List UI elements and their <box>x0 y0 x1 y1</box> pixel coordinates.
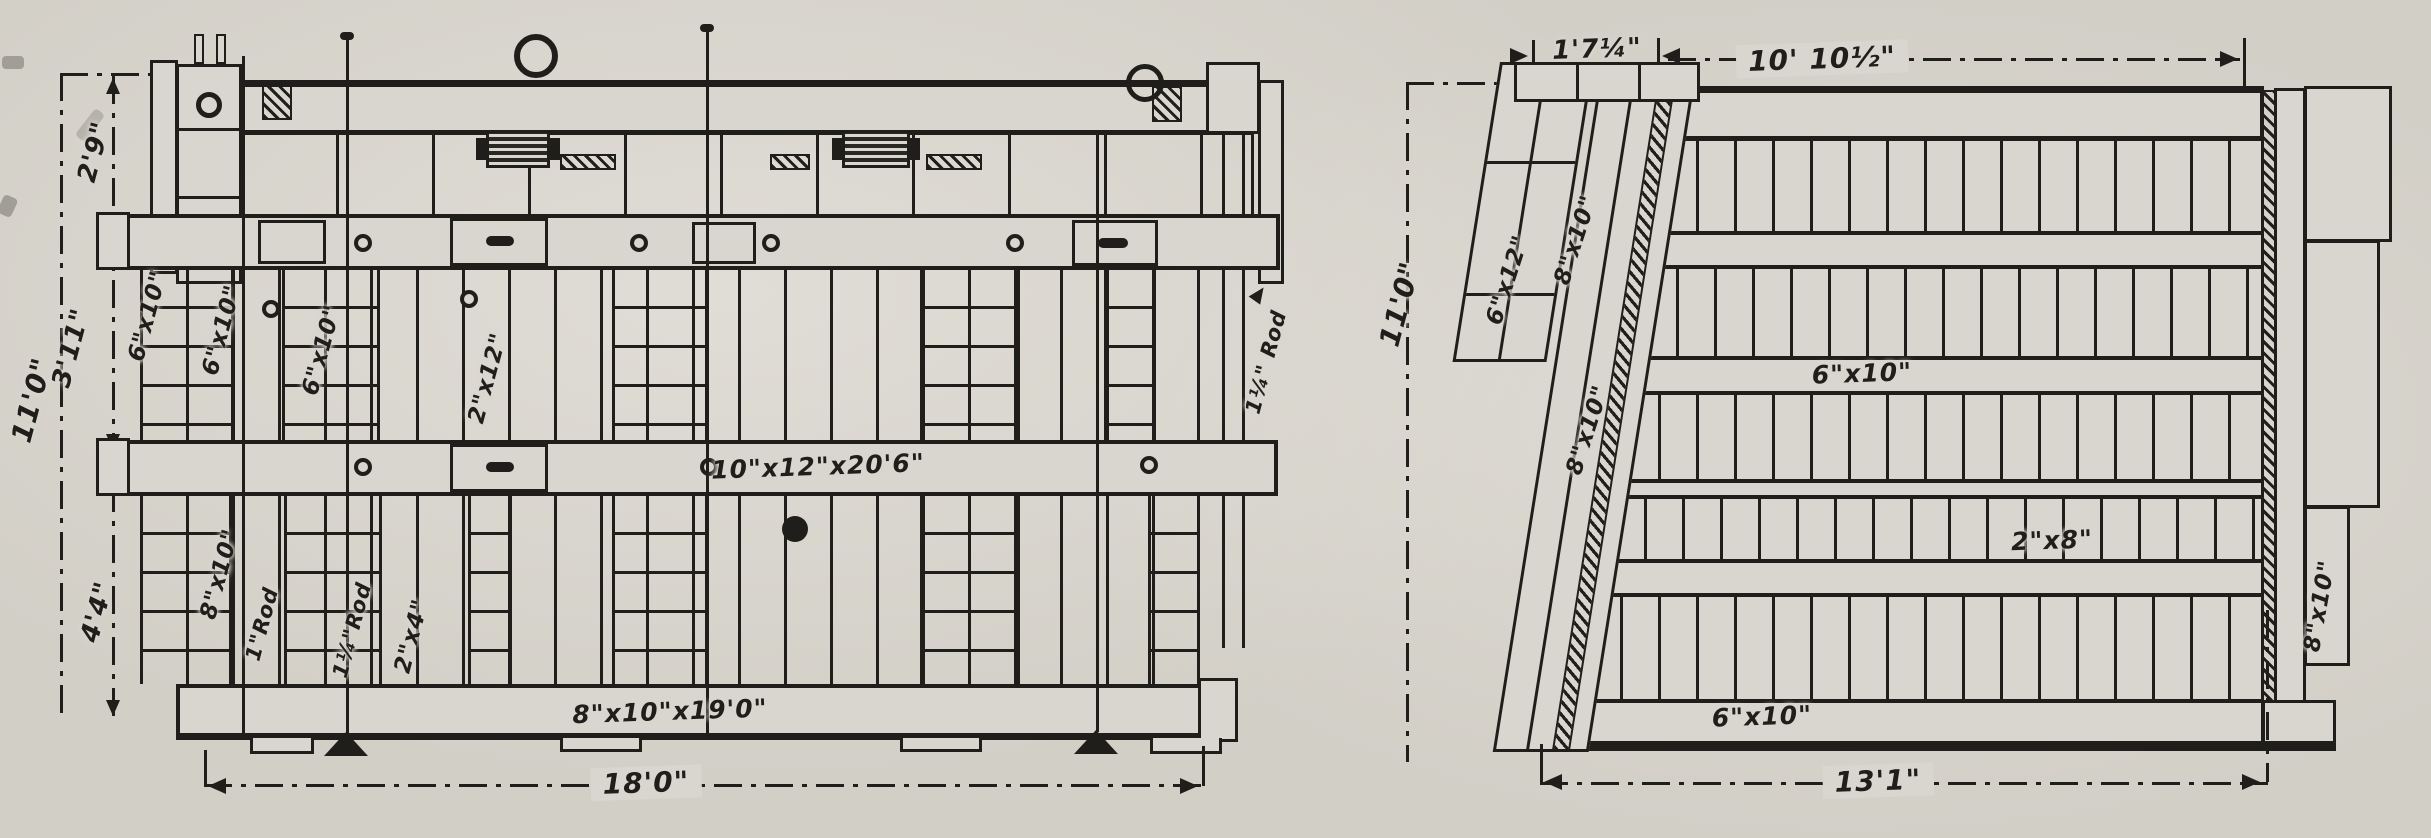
bolt-slot <box>486 462 514 472</box>
part-label-sheathing: 2"x8" <box>2011 526 2094 555</box>
hatch-block <box>262 84 292 120</box>
hatch-strip <box>926 154 982 170</box>
bolt-head <box>1140 456 1158 474</box>
lattice-column <box>468 496 512 684</box>
bolt-head <box>630 234 648 252</box>
hatch-strip <box>770 154 810 170</box>
base-line <box>2262 744 2336 751</box>
knot-hole <box>782 516 808 542</box>
arrow-right-icon <box>1180 778 1198 794</box>
sill-foot <box>560 738 642 752</box>
pulley-wheel <box>196 92 222 118</box>
upper-block-row <box>240 132 1254 218</box>
dimension-line-top-hook <box>60 73 154 76</box>
top-rail <box>226 80 1280 134</box>
anchor-bolt <box>216 34 226 64</box>
yoke-bracket <box>1206 62 1260 134</box>
tie-rod <box>1096 132 1099 732</box>
turnbuckle-cap <box>832 138 842 160</box>
waler-end-block <box>96 438 130 496</box>
bolt-slot <box>1098 238 1128 248</box>
dimension-line-height-segments <box>112 76 115 718</box>
lattice-column <box>1148 496 1200 684</box>
arrow-left-icon <box>208 778 226 794</box>
anchor-bell <box>1074 730 1118 754</box>
bolt-slot <box>486 236 514 246</box>
arrow-right-icon <box>2242 774 2260 790</box>
rod-cap <box>700 24 714 32</box>
dimension-label-top-width: 10' 10½" <box>1736 39 1909 78</box>
part-label-mid-waler: 6"x10" <box>1811 359 1912 389</box>
bolt-head <box>762 234 780 252</box>
rod-cap <box>340 32 354 40</box>
dimension-label-overall-height: 11'0" <box>1375 258 1426 349</box>
sill-foot <box>250 738 314 754</box>
part-label-rod-right: 1¼" Rod <box>1242 308 1291 416</box>
arrow-left-icon <box>1544 774 1562 790</box>
lifting-ring <box>514 34 558 78</box>
bolt-head <box>262 300 280 318</box>
sill-foot <box>1150 738 1222 754</box>
timber-joint <box>1487 161 1575 164</box>
bolt-head <box>1006 234 1024 252</box>
bolt-head <box>460 290 478 308</box>
dimension-label-bottom-width: 13'1" <box>1822 762 1934 799</box>
lattice-column <box>920 496 1020 684</box>
sill-extension <box>2262 700 2336 744</box>
dimension-hook <box>2266 610 2269 782</box>
dimension-hook <box>1202 746 1205 786</box>
dimension-label-overall-height: 11'0" <box>7 354 58 445</box>
bolt-head <box>354 234 372 252</box>
hatch-strip <box>560 154 616 170</box>
waler <box>1544 560 2264 596</box>
waler-lower <box>118 440 1278 496</box>
dimension-label-segment-middle: 3'11" <box>48 305 95 390</box>
tie-rod <box>1222 134 1225 648</box>
dimension-line-height-overall <box>60 73 63 721</box>
arrow-right-icon <box>2220 51 2238 67</box>
bolt-head <box>354 458 372 476</box>
sill-foot <box>900 738 982 752</box>
scan-mark <box>0 194 19 218</box>
base-line <box>1544 744 2264 751</box>
turnbuckle-cap <box>476 138 486 160</box>
end-post-top <box>2304 86 2392 242</box>
lattice-column <box>612 270 708 440</box>
plank-band <box>1544 496 2264 562</box>
lattice-column <box>920 270 1020 440</box>
dimension-line-width-overall <box>204 784 1204 787</box>
bottom-waler <box>1544 700 2264 744</box>
dimension-hook <box>1540 744 1543 782</box>
lattice-column <box>1104 270 1156 440</box>
turnbuckle <box>486 130 550 168</box>
dimension-line-height-overall <box>1406 82 1409 762</box>
turnbuckle-cap <box>910 138 920 160</box>
dimension-label-overall-width: 18'0" <box>590 764 702 801</box>
bolt-plate <box>692 222 756 264</box>
tie-rod <box>242 56 245 738</box>
turnbuckle <box>842 130 910 168</box>
plank-band <box>1544 392 2264 482</box>
waler-end-block <box>96 212 130 270</box>
dimension-hook <box>204 750 207 786</box>
part-label-bottom-waler: 6"x10" <box>1711 702 1812 732</box>
leader-arrow-icon <box>1249 283 1270 304</box>
scan-mark <box>2 56 24 69</box>
end-post-mid <box>2304 240 2380 508</box>
arrow-up-icon <box>106 78 120 94</box>
dimension-label-top-offset: 1'7¼" <box>1552 35 1643 65</box>
lattice-column <box>612 496 708 684</box>
plank-band <box>1544 594 2264 702</box>
yoke-joint <box>176 196 242 199</box>
tie-rod <box>706 28 709 740</box>
arrow-down-icon <box>106 700 120 716</box>
anchor-bolt <box>194 34 204 64</box>
yoke-joint <box>176 128 242 131</box>
batter-cap <box>1514 62 1700 102</box>
bolt-plate <box>258 220 326 264</box>
hatch-block <box>1152 86 1182 122</box>
drawing-canvas: 2'9" 3'11" 4'4" 11'0" <box>0 0 2431 838</box>
turnbuckle-cap <box>550 138 560 160</box>
sill-end-block <box>1198 678 1238 742</box>
